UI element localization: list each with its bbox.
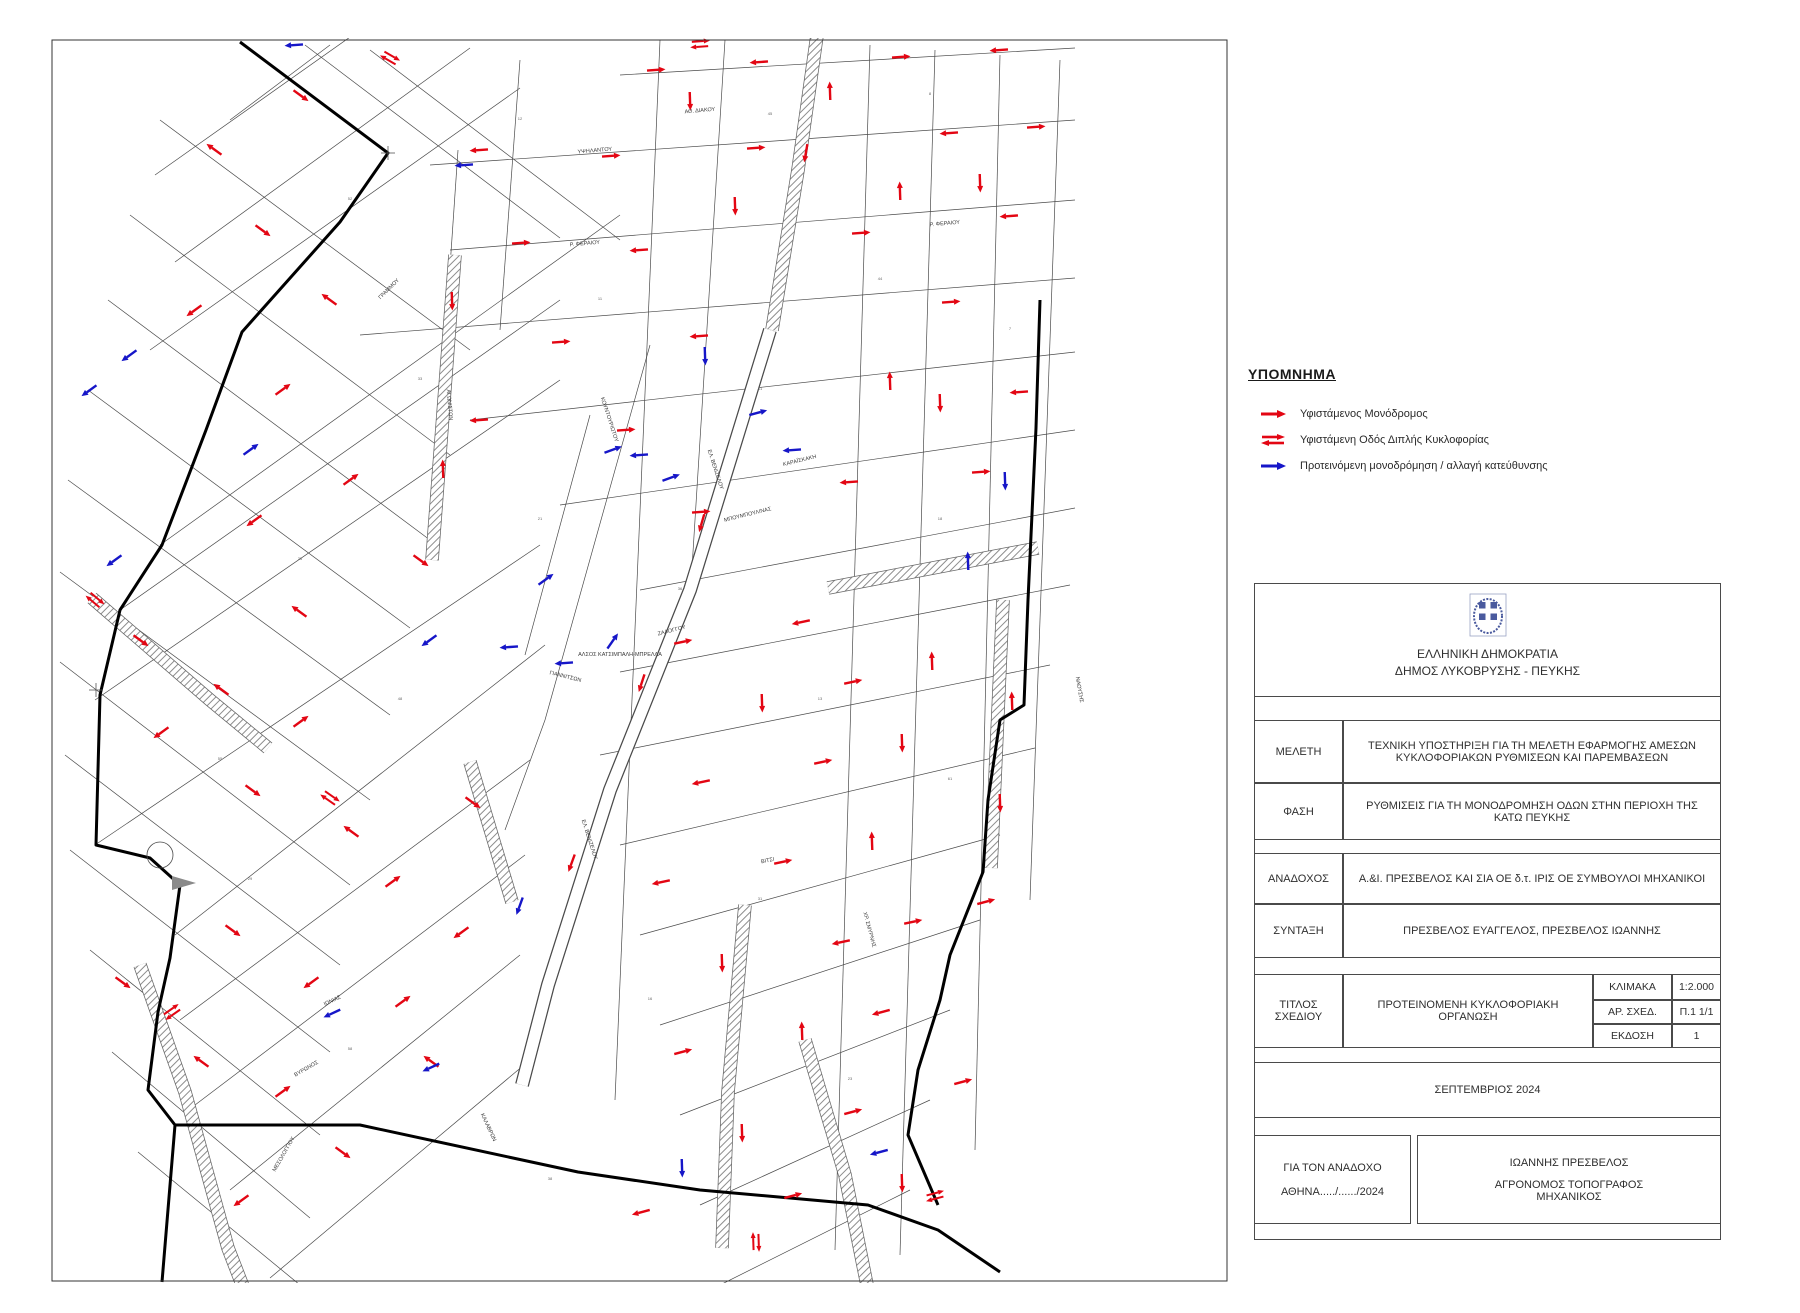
svg-text:ΚΑΡΑΪΣΚΑΚΗ: ΚΑΡΑΪΣΚΑΚΗ [782,453,817,468]
svg-text:ΑΘ. ΔΙΑΚΟΥ: ΑΘ. ΔΙΑΚΟΥ [684,107,715,116]
svg-text:ΧΡ. ΣΜΥΡΝΗΣ: ΧΡ. ΣΜΥΡΝΗΣ [861,911,876,948]
existing-arrow [254,223,272,239]
svg-text:13: 13 [818,696,823,701]
anadoxos-label: ΑΝΑΔΟΧΟΣ [1254,853,1343,904]
existing-arrow [469,146,488,153]
existing-arrow [302,975,320,991]
proposed-arrow [629,451,648,458]
date-cell: ΣΕΠΤΕΜΒΡΙΟΣ 2024 [1254,1062,1721,1118]
proposed-arrow [80,383,98,399]
titlos-label: ΤΙΤΛΟΣ ΣΧΕΔΙΟΥ [1254,974,1343,1048]
authority-title: ΕΛΛΗΝΙΚΗ ΔΗΜΟΚΡΑΤΙΑ ΔΗΜΟΣ ΛΥΚΟΒΡΥΣΗΣ - Π… [1255,646,1720,680]
existing-arrow [232,1193,250,1209]
existing-arrow [512,239,531,246]
existing-arrow [814,757,833,767]
existing-arrow [290,603,308,619]
klimaka-value: 1:2.000 [1672,974,1721,1000]
svg-text:52: 52 [348,196,353,201]
proposed-arrow [869,1147,888,1158]
existing-arrow [1009,388,1028,395]
ekdosi-value: 1 [1672,1024,1721,1048]
svg-text:61: 61 [948,776,953,781]
svg-text:ΜΕΣΟΛΟΓΓΙΟΥ: ΜΕΣΟΛΟΓΓΙΟΥ [272,1136,297,1173]
existing-arrow [319,788,341,808]
street-map: ΥΨΗΛΑΝΤΟΥΡ. ΦΕΡΑΙΟΥΡ. ΦΕΡΑΙΟΥΑΘ. ΔΙΑΚΟΥΑ… [50,38,1229,1283]
existing-arrow [869,831,876,850]
svg-text:44: 44 [878,276,883,281]
svg-text:29: 29 [248,876,253,881]
svg-text:ΝΑΟΥΣΗΣ: ΝΑΟΥΣΗΣ [1074,676,1085,703]
existing-arrow [274,1083,292,1099]
svg-text:27: 27 [498,856,503,861]
existing-arrow [972,468,991,475]
authority-line1: ΕΛΛΗΝΙΚΗ ΔΗΜΟΚΡΑΤΙΑ [1255,646,1720,663]
existing-arrow [212,681,230,697]
existing-arrow [631,1207,650,1218]
proposed-arrow [603,444,622,456]
svg-text:ΜΠΟΥΜΠΟΥΛΙΝΑΣ: ΜΠΟΥΜΠΟΥΛΙΝΑΣ [724,506,773,524]
existing-arrow [953,1076,972,1087]
existing-arrow [1009,691,1016,710]
svg-text:55: 55 [218,756,223,761]
existing-arrow [394,993,412,1009]
svg-text:58: 58 [348,1046,353,1051]
existing-arrow [292,713,310,729]
greek-coat-of-arms [1469,593,1507,637]
existing-arrow [342,471,360,487]
existing-arrow [929,651,936,670]
legend-item-two-way: Υφιστάμενη Οδός Διπλής Κυκλοφορίας [1256,430,1489,450]
existing-arrow [942,298,961,305]
existing-arrow [852,229,871,236]
ar-sxed-label: ΑΡ. ΣΧΕΔ. [1593,1000,1672,1024]
existing-arrow [732,197,739,216]
existing-arrow [205,141,223,157]
svg-text:38: 38 [548,1176,553,1181]
svg-text:ΒΙΤΣΙ: ΒΙΤΣΙ [761,857,776,866]
existing-arrow [899,734,906,753]
existing-arrow [617,426,636,433]
existing-arrow [887,371,894,390]
svg-text:21: 21 [538,516,543,521]
signature-left-cell: ΓΙΑ ΤΟΝ ΑΝΑΔΟΧΟ ΑΘΗΝΑ...../....../2024 [1254,1135,1411,1224]
proposed-arrow [537,571,555,587]
syntaxi-text: ΠΡΕΣΒΕΛΟΣ ΕΥΑΓΓΕΛΟΣ, ΠΡΕΣΒΕΛΟΣ ΙΩΑΝΝΗΣ [1343,904,1721,958]
svg-text:Ρ. ΦΕΡΑΙΟΥ: Ρ. ΦΕΡΑΙΟΥ [930,220,961,229]
proposed-arrow [1002,472,1009,491]
svg-text:18: 18 [938,516,943,521]
existing-arrow [747,144,766,151]
existing-arrow [689,332,708,339]
signature-right-cell: ΙΩΑΝΝΗΣ ΠΡΕΣΒΕΛΟΣ ΑΓΡΟΝΟΜΟΣ ΤΟΠΟΓΡΑΦΟΣ Μ… [1417,1135,1721,1224]
svg-text:ΙΩΝΙΑΣ: ΙΩΝΙΑΣ [323,994,343,1007]
ar-sxed-value: Π.1 1/1 [1672,1000,1721,1024]
legend-item-label: Υφιστάμενη Οδός Διπλής Κυκλοφορίας [1300,434,1489,446]
existing-arrow [749,58,768,65]
svg-text:45: 45 [768,111,773,116]
drawing-sheet: ΥΨΗΛΑΝΤΟΥΡ. ΦΕΡΑΙΟΥΡ. ΦΕΡΑΙΟΥΑΘ. ΔΙΑΚΟΥΑ… [0,0,1800,1313]
svg-text:23: 23 [848,1076,853,1081]
legend-item-label: Υφιστάμενος Μονόδρομος [1300,408,1428,420]
svg-text:Ρ. ΦΕΡΑΙΟΥ: Ρ. ΦΕΡΑΙΟΥ [570,240,601,249]
proposed-arrow [782,446,801,453]
svg-text:7: 7 [1009,326,1012,331]
proposed-arrow [120,348,138,364]
proposed-arrow [105,553,123,569]
svg-text:ΒΥΡΩΝΟΣ: ΒΥΡΩΝΟΣ [293,1060,320,1079]
svg-text:11: 11 [598,296,603,301]
existing-arrow [827,81,834,100]
existing-arrow [750,1232,761,1252]
svg-text:ΓΡΑΜΜΟΥ: ΓΡΑΜΜΟΥ [378,277,401,300]
existing-arrow [651,877,670,887]
existing-arrow [469,416,488,423]
existing-arrow [379,48,402,67]
legend-item-label: Προτεινόμενη μονοδρόμηση / αλλαγή κατεύθ… [1300,460,1548,472]
proposed-arrow [284,41,303,48]
svg-text:ΑΛΣΟΣ ΚΑΤΣΙΜΠΑΛΗ-ΜΠΡΕΛΛΑ: ΑΛΣΟΣ ΚΑΤΣΙΜΠΑΛΗ-ΜΠΡΕΛΛΑ [578,652,662,658]
klimaka-label: ΚΛΙΜΑΚΑ [1593,974,1672,1000]
svg-text:8: 8 [929,91,932,96]
existing-arrow [759,694,766,713]
svg-text:ΓΙΑΝΝΙΤΣΩΝ: ΓΙΑΝΝΙΤΣΩΝ [549,670,582,684]
existing-arrow [939,129,958,136]
existing-arrow [937,394,944,413]
existing-arrow [244,783,262,799]
existing-arrow [774,857,793,867]
svg-text:36: 36 [678,586,683,591]
existing-arrow [844,677,863,687]
existing-arrow [843,1106,862,1117]
existing-arrow [1027,123,1046,130]
existing-arrow [892,53,911,60]
existing-arrow [791,617,810,627]
sig-left-line2: ΑΘΗΝΑ...../....../2024 [1281,1186,1384,1198]
titlos-text: ΠΡΟΤΕΙΝΟΜΕΝΗ ΚΥΚΛΟΦΟΡΙΑΚΗ ΟΡΓΑΝΩΣΗ [1343,974,1593,1048]
proposed-arrow [702,347,709,366]
red-single-arrow-icon [1256,408,1290,420]
existing-arrow [602,152,621,159]
existing-arrow [384,873,402,889]
existing-arrow [999,212,1018,219]
svg-text:33: 33 [418,376,423,381]
anadoxos-text: Α.&Ι. ΠΡΕΣΒΕΛΟΣ ΚΑΙ ΣΙΑ ΟΕ δ.τ. ΙΡΙΣ ΟΕ … [1343,853,1721,904]
svg-text:41: 41 [758,386,763,391]
existing-arrow [691,777,710,787]
existing-arrow [673,1046,692,1057]
existing-arrow [552,338,571,345]
existing-arrow [114,975,132,991]
sig-right-line2: ΑΓΡΟΝΟΜΟΣ ΤΟΠΟΓΡΑΦΟΣ ΜΗΧΑΝΙΚΟΣ [1469,1179,1669,1203]
existing-arrow [320,291,338,307]
proposed-arrow [499,643,518,650]
fasi-label: ΦΑΣΗ [1254,783,1343,840]
existing-arrow [897,181,904,200]
existing-arrow [274,381,292,397]
proposed-arrow [242,441,260,457]
existing-arrow [152,725,170,741]
existing-arrow [739,1124,746,1143]
legend-title: ΥΠΟΜΝΗΜΑ [1248,366,1336,382]
existing-arrow [799,1021,806,1040]
legend-item-proposed-oneway: Προτεινόμενη μονοδρόμηση / αλλαγή κατεύθ… [1256,456,1548,476]
existing-arrow [899,1174,906,1193]
existing-arrow [904,917,923,927]
existing-arrow [292,88,310,104]
meleti-label: ΜΕΛΕΤΗ [1254,720,1343,783]
existing-arrow [334,1145,352,1161]
proposed-arrow [322,1007,341,1020]
existing-arrow [224,923,242,939]
svg-text:ΚΑΛΑΒΡΩΝ: ΚΑΛΑΒΡΩΝ [479,1113,497,1143]
existing-arrow [185,303,203,319]
svg-text:12: 12 [518,116,523,121]
map-border [52,40,1227,1281]
svg-text:48: 48 [398,696,403,701]
svg-text:16: 16 [648,996,653,1001]
existing-arrow [977,174,984,193]
title-block-header: ΕΛΛΗΝΙΚΗ ΔΗΜΟΚΡΑΤΙΑ ΔΗΜΟΣ ΛΥΚΟΒΡΥΣΗΣ - Π… [1254,583,1721,697]
syntaxi-label: ΣΥΝΤΑΞΗ [1254,904,1343,958]
meleti-text: ΤΕΧΝΙΚΗ ΥΠΟΣΤΗΡΙΞΗ ΓΙΑ ΤΗ ΜΕΛΕΤΗ ΕΦΑΡΜΟΓ… [1343,720,1721,783]
sig-left-line1: ΓΙΑ ΤΟΝ ΑΝΑΔΟΧΟ [1283,1162,1381,1174]
authority-line2: ΔΗΜΟΣ ΛΥΚΟΒΡΥΣΗΣ - ΠΕΥΚΗΣ [1255,663,1720,680]
existing-arrow [452,925,470,941]
blue-single-arrow-icon [1256,460,1290,472]
sig-right-line1: ΙΩΑΝΝΗΣ ΠΡΕΣΒΕΛΟΣ [1510,1157,1629,1169]
boundary-direction-arrow [172,876,196,890]
existing-arrow [342,823,360,839]
red-double-arrow-icon [1256,433,1290,447]
legend-item-existing-oneway: Υφιστάμενος Μονόδρομος [1256,404,1428,424]
proposed-arrow [554,659,573,666]
existing-arrow [831,937,850,947]
existing-arrow [719,954,726,973]
existing-arrow [629,246,648,253]
svg-text:ΥΨΗΛΑΝΤΟΥ: ΥΨΗΛΑΝΤΟΥ [577,146,612,155]
proposed-arrow [420,633,438,649]
existing-arrow [192,1053,210,1069]
existing-arrow [976,896,995,907]
svg-text:25: 25 [298,556,303,561]
existing-arrow [566,853,578,872]
svg-text:31: 31 [758,896,763,901]
proposed-arrow [605,632,621,651]
fasi-text: ΡΥΘΜΙΣΕΙΣ ΓΙΑ ΤΗ ΜΟΝΟΔΡΟΜΗΣΗ ΟΔΩΝ ΣΤΗΝ Π… [1343,783,1721,840]
existing-arrow [839,478,858,485]
proposed-arrow [679,1159,686,1178]
existing-arrow [871,1007,890,1018]
ekdosi-label: ΕΚΔΟΣΗ [1593,1024,1672,1048]
proposed-arrow [661,472,680,484]
